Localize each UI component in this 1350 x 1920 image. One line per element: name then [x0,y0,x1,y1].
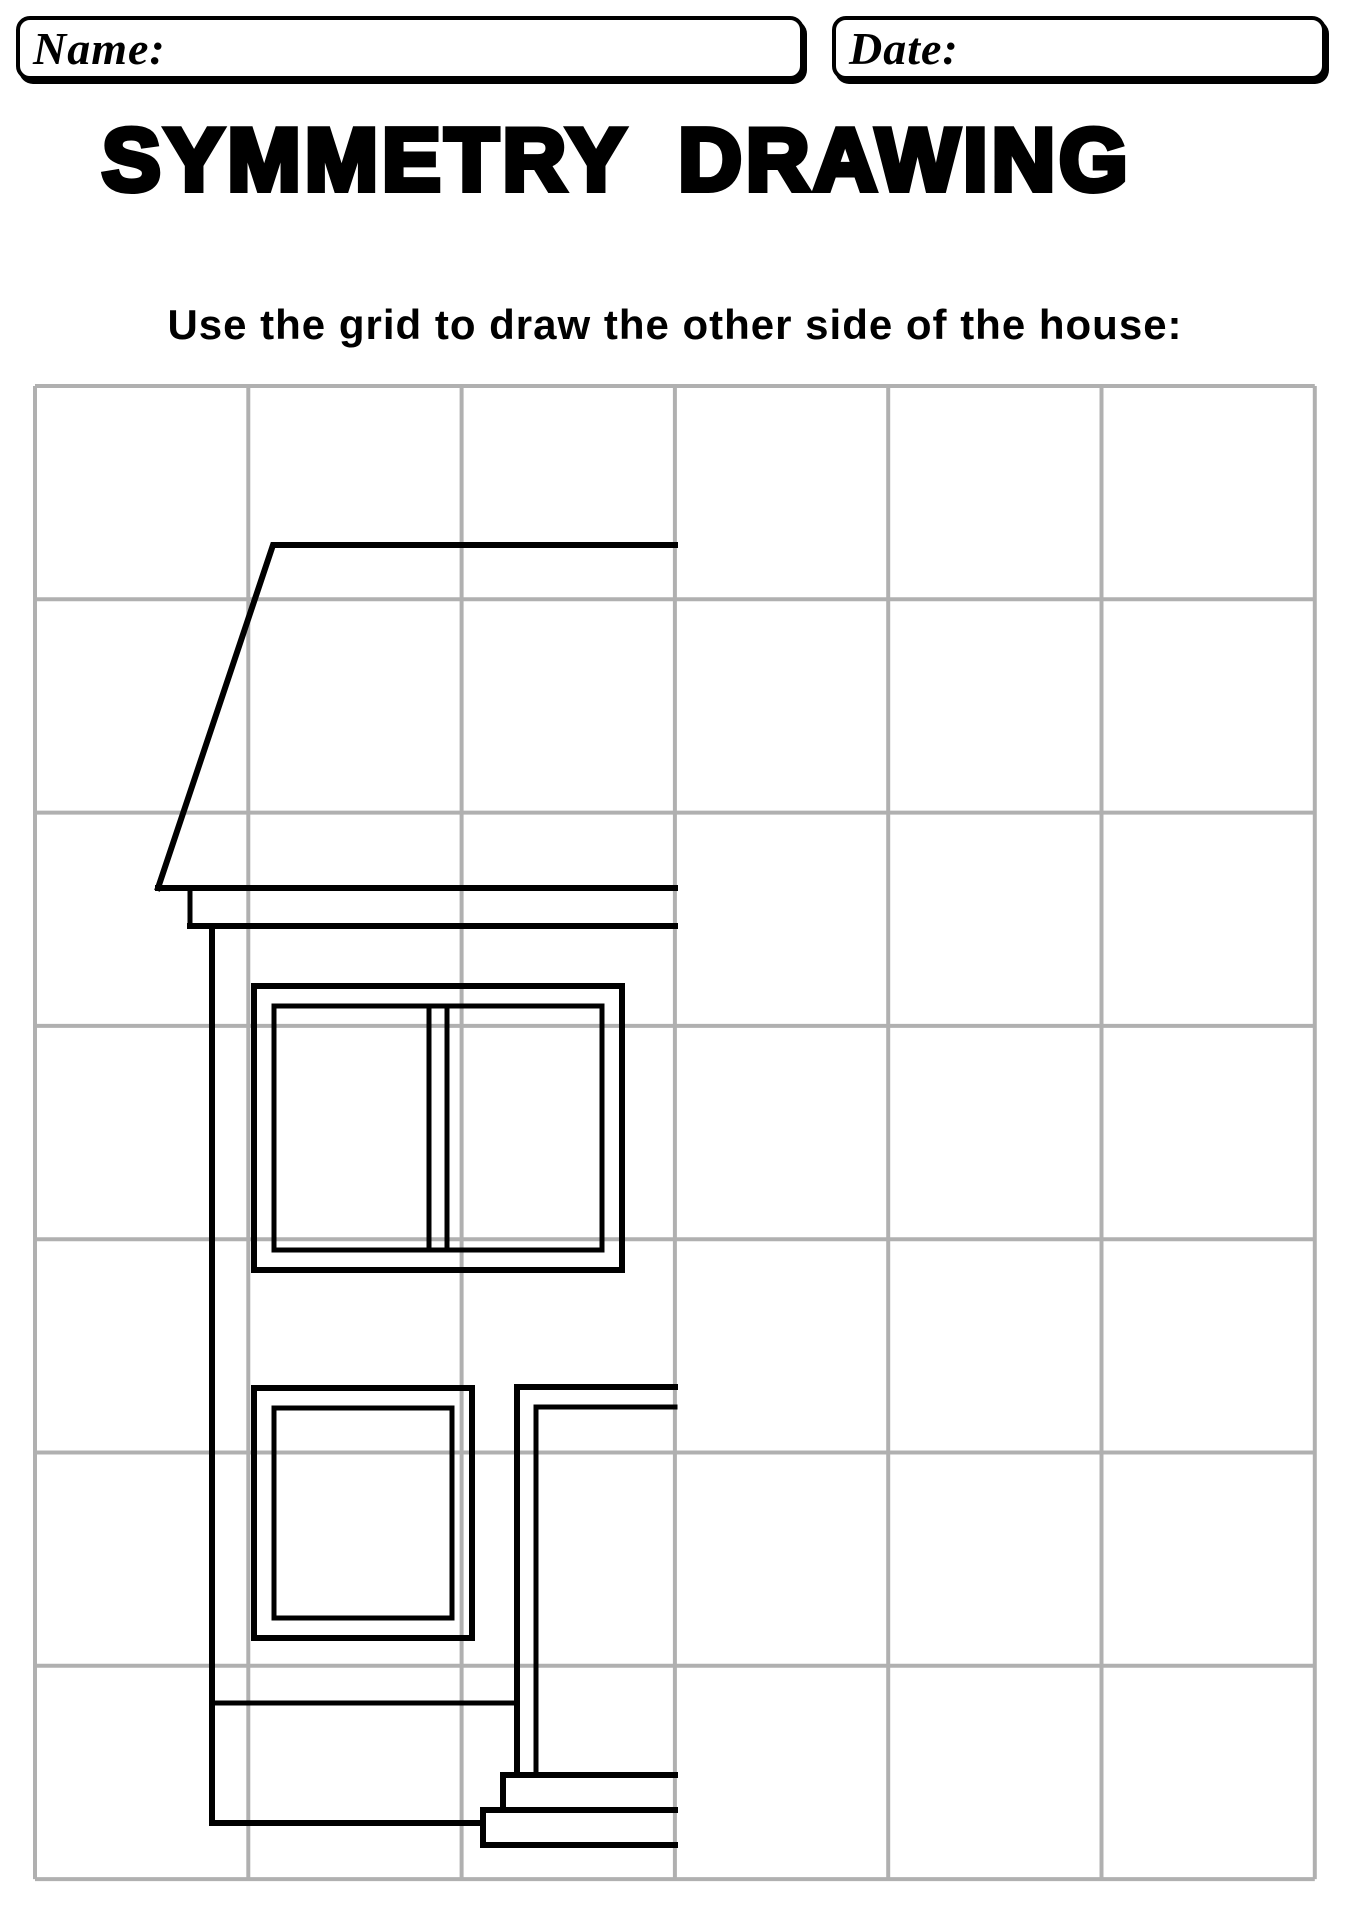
worksheet-page: Name: Date: SYMMETRY DRAWING Use the gri… [0,0,1350,1920]
upper-window-outer-frame [254,986,622,1270]
porch-step-lower [483,1810,675,1845]
lower-window-outer-frame [254,1388,472,1638]
worksheet-canvas [0,0,1350,1920]
upper-window-inner-frame [274,1006,602,1250]
lower-window-inner-frame [274,1408,452,1618]
house-drawing-group [158,545,675,1845]
porch-step-upper [503,1775,675,1810]
door-inner-frame [536,1407,675,1775]
grid-lines-group [35,386,1315,1879]
roof-outline [158,545,675,888]
door-outer-frame [517,1387,675,1775]
